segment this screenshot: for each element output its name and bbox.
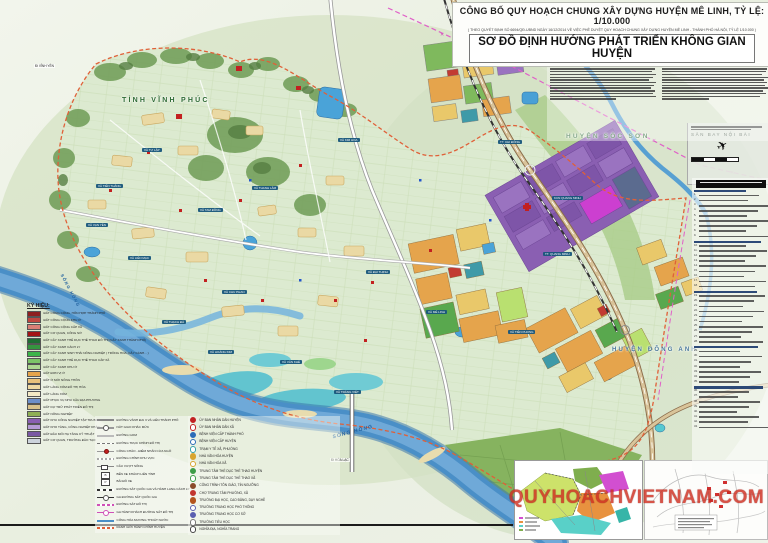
notes-item-text bbox=[699, 295, 765, 297]
facility-legend-label: TRƯỜNG TRUNG HỌC CƠ SỞ bbox=[199, 513, 245, 516]
transport-legend-label: CỐNG HÓA MƯƠNG THOÁT NƯỚC bbox=[117, 519, 169, 522]
transport-legend-label: NÚT GIAO KHÁC MỨC bbox=[117, 426, 150, 429]
transport-legend-item: ĐƯỜNG GOM bbox=[97, 432, 189, 439]
legend-swatch bbox=[27, 438, 41, 444]
notes-list-item: 19. bbox=[694, 294, 768, 298]
notes-list-item: 3. bbox=[694, 204, 768, 208]
facility-symbol bbox=[190, 468, 196, 474]
legend-swatch bbox=[27, 398, 41, 404]
facility-legend-label: BỆNH VIỆN CẤP HUYỆN bbox=[199, 440, 236, 443]
notes-item-text bbox=[699, 225, 757, 227]
facility-legend-item: BỆNH VIỆN CẤP THÀNH PHỐ bbox=[190, 432, 338, 438]
facility-legend-item: ỦY BAN NHÂN DÂN XÃ bbox=[190, 424, 338, 430]
facility-legend-label: CÔNG TRÌNH TÔN GIÁO, TÍN NGƯỠNG bbox=[199, 484, 258, 487]
notes-item-text bbox=[699, 366, 740, 368]
facility-symbol bbox=[190, 512, 196, 518]
legend-swatch bbox=[27, 371, 41, 377]
transport-legend-label: ĐƯỜNG TRỤC CHÍNH ĐÔ THỊ bbox=[117, 442, 161, 445]
legend-item: ĐẤT LÀNG XÓM ĐÔ THỊ HÓA bbox=[27, 385, 145, 391]
legend-swatch bbox=[27, 338, 41, 344]
transport-legend-item: ĐƯỜNG CHÍNH KHU VỰC bbox=[97, 455, 189, 462]
notes-item-text bbox=[699, 356, 762, 358]
legend-swatch bbox=[27, 391, 41, 397]
notes-list-item: 38. bbox=[694, 400, 768, 404]
legend-label: ĐẤT PHỤC VỤ NHU CẦU ĐỊA PHƯƠNG bbox=[44, 399, 101, 402]
facility-legend-label: NHÀ VĂN HÓA HUYỆN bbox=[199, 455, 233, 458]
notes-item-text bbox=[699, 321, 742, 323]
facility-legend-label: ỦY BAN NHÂN DÂN XÃ bbox=[199, 426, 233, 429]
notes-item-text bbox=[699, 276, 744, 278]
rail-station-glyph bbox=[97, 495, 114, 500]
transport-legend-item: ĐƯỜNG SẮT QUỐC GIA VÀ HÀNH LANG CÁCH LY bbox=[97, 486, 189, 493]
notes-list-item: 14. bbox=[694, 264, 768, 268]
facility-legend-item: TRUNG TÂM THỂ DỤC THỂ THAO XÃ bbox=[190, 475, 338, 481]
notes-list-item: 2. bbox=[694, 199, 768, 203]
legend-swatch bbox=[27, 344, 41, 350]
map-subtitle-decision: ( THEO QUYẾT ĐỊNH SỐ 6694/QĐ-UBND NGÀY 1… bbox=[455, 28, 768, 32]
legend-label: ĐẤT CÔNG CỘNG CẤP XÃ bbox=[44, 326, 83, 329]
notes-list-item: 31. bbox=[694, 360, 768, 364]
notes-list-item: 23. bbox=[694, 315, 768, 319]
facility-symbol bbox=[190, 526, 196, 532]
rail-glyph bbox=[97, 487, 114, 492]
transport-legend-item: PBÃI ĐỖ XE bbox=[97, 479, 189, 486]
road-dash-glyph bbox=[97, 441, 114, 446]
legend-label: ĐẤT ĐẦU MỐI HẠ TẦNG KỸ THUẬT bbox=[44, 433, 95, 436]
notes-item-text bbox=[699, 255, 756, 257]
legend-item: ĐẤT ĐƠN VỊ Ở bbox=[27, 371, 145, 377]
transport-legend-label: GA ĐƯỜNG SẮT QUỐC GIA bbox=[117, 496, 157, 499]
notes-item-text bbox=[699, 300, 754, 302]
notes-list-item: 25. bbox=[694, 325, 768, 329]
legend-label: ĐẤT CÂY XANH THỂ DỤC THỂ THAO CẤP XÃ bbox=[44, 359, 110, 362]
facility-legend-item: CÔNG TRÌNH TÔN GIÁO, TÍN NGƯỠNG bbox=[190, 483, 338, 489]
facility-legend-item: TRƯỜNG TRUNG HỌC PHỔ THÔNG bbox=[190, 505, 338, 511]
facility-legend-item: TRƯỜNG ĐẠI HỌC, CAO ĐẲNG, DẠY NGHỀ bbox=[190, 497, 338, 503]
facility-legend-item: NHÀ VĂN HÓA XÃ bbox=[190, 461, 338, 467]
notes-list-item: 43. bbox=[694, 425, 768, 429]
notes-section-header bbox=[694, 241, 761, 243]
transport-legend-label: GA HÀNH KHÁCH ĐƯỜNG SẮT ĐÔ THỊ bbox=[117, 511, 174, 514]
notes-item-text bbox=[699, 200, 748, 202]
facility-legend-item: TRẠM Y TẾ XÃ, PHƯỜNG bbox=[190, 446, 338, 452]
legend-item: ĐẤT CÂY XANH SINH THÁI NÔNG NGHIỆP ( TRỒ… bbox=[27, 351, 145, 357]
notes-item-text bbox=[699, 406, 749, 408]
facility-legend-item: NGHĨA ĐỊA, NGHĨA TRANG bbox=[190, 526, 338, 532]
notes-list-item: 18. bbox=[694, 285, 768, 289]
legend-item: ĐẤT CÂY XANH KHU Ở bbox=[27, 365, 145, 371]
legend-item: ĐẤT CÔNG CỘNG KHU Ở bbox=[27, 318, 145, 324]
transport-legend-item: NÚT GIAO KHÁC MỨC bbox=[97, 425, 189, 432]
transport-legend-label: ĐƯỜNG GOM bbox=[117, 434, 137, 437]
legend-label: ĐẤT NÔNG NGHIỆP bbox=[44, 413, 73, 416]
legend-item: ĐẤT CÂY XANH THỂ DỤC THỂ THAO ĐÔ THỊ (CÂ… bbox=[27, 338, 145, 344]
notes-list-item: 4. bbox=[694, 209, 768, 213]
notes-list-item: 29. bbox=[694, 350, 768, 354]
notes-item-text bbox=[699, 306, 743, 308]
notes-item-text bbox=[699, 215, 747, 217]
notes-item-text bbox=[699, 331, 752, 333]
notes-item-text bbox=[699, 311, 764, 313]
transport-legend-item: RANH GIỚI HÀNH CHÍNH HUYỆN bbox=[97, 525, 189, 532]
facility-symbol bbox=[190, 446, 196, 452]
facility-legend-label: BỆNH VIỆN CẤP THÀNH PHỐ bbox=[199, 433, 243, 436]
notes-item-text bbox=[699, 260, 745, 262]
notes-item-text bbox=[699, 416, 759, 418]
transport-legend-label: ĐƯỜNG SẮT QUỐC GIA VÀ HÀNH LANG CÁCH LY bbox=[117, 488, 190, 491]
notes-item-text bbox=[699, 205, 768, 207]
legend-swatch bbox=[27, 317, 41, 323]
facility-legend-item: BỆNH VIỆN CẤP HUYỆN bbox=[190, 439, 338, 445]
legend-swatch bbox=[27, 358, 41, 364]
transport-legend-label: ĐƯỜNG VÀNH ĐAI 3 VÀ LIÊN THÀNH PHỐ bbox=[117, 419, 179, 422]
notes-list-item: 21. bbox=[694, 304, 768, 308]
notes-list-item: 41. bbox=[694, 415, 768, 419]
legend-label: ĐẤT CƠ QUAN, CÔNG SỞ bbox=[44, 332, 82, 335]
map-title: CÔNG BỐ QUY HOẠCH CHUNG XÂY DỰNG HUYỆN M… bbox=[455, 6, 768, 26]
facility-legend-label: TRƯỜNG TRUNG HỌC PHỔ THÔNG bbox=[199, 506, 254, 509]
notes-item-text bbox=[699, 401, 760, 403]
facility-legend-item: TRƯỜNG TRUNG HỌC CƠ SỞ bbox=[190, 512, 338, 518]
svg-text:✕: ✕ bbox=[440, 32, 444, 38]
facility-legend-item: NHÀ VĂN HÓA HUYỆN bbox=[190, 453, 338, 459]
transport-legend-item: GA ĐƯỜNG SẮT QUỐC GIA bbox=[97, 494, 189, 501]
legend-label: ĐẤT Ở MỚI NÔNG THÔN bbox=[44, 379, 80, 382]
notes-item-text bbox=[699, 326, 763, 328]
notes-list-item: 9. bbox=[694, 234, 768, 238]
notes-list-item: 8. bbox=[694, 229, 768, 233]
notes-list-item: 5. bbox=[694, 214, 768, 218]
notes-list-item: 1. bbox=[694, 194, 768, 198]
boundary-glyph bbox=[97, 525, 114, 530]
notes-item-text bbox=[699, 371, 761, 373]
notes-item-text bbox=[699, 351, 740, 353]
notes-item-text bbox=[699, 210, 758, 212]
metro-station-glyph bbox=[97, 510, 114, 515]
transport-legend-label: BÃI ĐỖ XE bbox=[117, 480, 132, 483]
transport-legend-item: GA HÀNH KHÁCH ĐƯỜNG SẮT ĐÔ THỊ bbox=[97, 509, 189, 516]
facility-symbol bbox=[190, 424, 196, 430]
transport-legend-label: ĐƯỜNG SẮT ĐÔ THỊ bbox=[117, 503, 147, 506]
legend-item: ĐẤT CÂY XANH CÁCH LY bbox=[27, 344, 145, 350]
canal-glyph bbox=[97, 518, 114, 523]
transport-legend-item: ĐƯỜNG VÀNH ĐAI 3 VÀ LIÊN THÀNH PHỐ bbox=[97, 417, 189, 424]
facility-legend-item: ỦY BAN NHÂN DÂN HUYỆN bbox=[190, 417, 338, 423]
legend-label: ĐẤT CÂY XANH CÁCH LY bbox=[44, 346, 81, 349]
notes-item-text bbox=[699, 427, 768, 429]
notes-list-item: 42. bbox=[694, 420, 768, 424]
legend-swatch bbox=[27, 404, 41, 410]
legend-swatch bbox=[27, 424, 41, 430]
legend-label: ĐẤT CÂY XANH SINH THÁI NÔNG NGHIỆP ( TRỒ… bbox=[44, 352, 149, 355]
notes-item-text bbox=[699, 361, 751, 363]
notes-list-item: 37. bbox=[694, 395, 768, 399]
transport-legend-label: RANH GIỚI HÀNH CHÍNH HUYỆN bbox=[117, 526, 165, 529]
legend-swatch bbox=[27, 418, 41, 424]
notes-item-text bbox=[699, 411, 737, 413]
transport-legend-item: BBẾN XE KHÁCH LIÊN TỈNH bbox=[97, 471, 189, 478]
notes-list-item: 39. bbox=[694, 405, 768, 409]
legend-swatch bbox=[27, 364, 41, 370]
notes-item-text bbox=[699, 250, 767, 252]
facility-legend-label: ỦY BAN NHÂN DÂN HUYỆN bbox=[199, 419, 240, 422]
legend-swatch bbox=[27, 324, 41, 330]
legend-label: ĐẤT CÂY XANH THỂ DỤC THỂ THAO ĐÔ THỊ (CÂ… bbox=[44, 339, 147, 342]
watermark: QUYHOACHVIETNAM.COM bbox=[505, 487, 768, 509]
notes-list-item: 15. bbox=[694, 269, 768, 273]
facility-legend-label: NHÀ VĂN HÓA XÃ bbox=[199, 462, 226, 465]
facility-legend-label: TRẠM Y TẾ XÃ, PHƯỜNG bbox=[199, 448, 237, 451]
legend-label: ĐẤT CÂY XANH KHU Ở bbox=[44, 366, 78, 369]
facility-symbol bbox=[190, 432, 196, 438]
notes-item-text bbox=[699, 376, 750, 378]
legend-title: KÝ HIỆU: bbox=[27, 303, 145, 309]
notes-item-text bbox=[699, 391, 749, 393]
map-scheme-title: SƠ ĐỒ ĐỊNH HƯỚNG PHÁT TRIỂN KHÔNG GIAN H… bbox=[469, 34, 755, 63]
transport-legend: ĐƯỜNG VÀNH ĐAI 3 VÀ LIÊN THÀNH PHỐNÚT GI… bbox=[95, 416, 191, 533]
facility-symbol bbox=[190, 497, 196, 503]
transport-legend-item: CẦU VƯỢT SÔNG bbox=[97, 463, 189, 470]
facility-legend-label: TRUNG TÂM THỂ DỤC THỂ THAO XÃ bbox=[199, 477, 255, 480]
bridge-glyph bbox=[97, 464, 114, 469]
legend-swatch bbox=[27, 311, 41, 317]
notes-list-rows: 1.2.3.4.5.6.7.8.9.10.11.12.13.14.15.16.1… bbox=[694, 190, 768, 429]
notes-item-text bbox=[699, 396, 738, 398]
legend-swatch bbox=[27, 384, 41, 390]
notes-item-text bbox=[699, 336, 741, 338]
notes-list-item: 13. bbox=[694, 259, 768, 263]
facility-legend: ỦY BAN NHÂN DÂN HUYỆNỦY BAN NHÂN DÂN XÃB… bbox=[188, 416, 340, 535]
gate-glyph bbox=[97, 449, 114, 454]
legend-item: ĐẤT PHỤC VỤ NHU CẦU ĐỊA PHƯƠNG bbox=[27, 398, 145, 404]
road-minor-glyph bbox=[97, 433, 114, 438]
notes-list-item: 16. bbox=[694, 274, 768, 278]
transport-legend-item: CỐNG HÓA MƯƠNG THOÁT NƯỚC bbox=[97, 517, 189, 524]
facility-symbol bbox=[190, 461, 196, 467]
facility-symbol bbox=[190, 505, 196, 511]
notes-section-header bbox=[694, 291, 757, 293]
legend-item: ĐẤT LÀNG XÓM bbox=[27, 391, 145, 397]
junction-glyph bbox=[97, 425, 114, 430]
notes-item-text bbox=[699, 236, 768, 238]
notes-section-header bbox=[694, 190, 746, 192]
notes-item-text bbox=[699, 341, 763, 343]
road-dash2-glyph bbox=[97, 456, 114, 461]
legend-swatch bbox=[27, 378, 41, 384]
legend-item: ĐẤT DỰ TRỮ PHÁT TRIỂN ĐÔ THỊ bbox=[27, 405, 145, 411]
legend-label: ĐẤT DỰ TRỮ PHÁT TRIỂN ĐÔ THỊ bbox=[44, 406, 94, 409]
facility-legend-item: TRUNG TÂM THỂ DỤC THỂ THAO HUYỆN bbox=[190, 468, 338, 474]
legend-label: ĐẤT KHO TÀNG, CÔNG NGHIỆP KHÁC bbox=[44, 426, 100, 429]
scale-bar bbox=[691, 157, 739, 162]
legend-swatch bbox=[27, 331, 41, 337]
legend-label: ĐẤT LÀNG XÓM ĐÔ THỊ HÓA bbox=[44, 386, 86, 389]
legend-label: ĐẤT LÀNG XÓM bbox=[44, 393, 67, 396]
notes-columns bbox=[550, 62, 768, 102]
notes-list-item: 32. bbox=[694, 365, 768, 369]
notes-list-item: 33. bbox=[694, 370, 768, 374]
notes-list-item: 26. bbox=[694, 330, 768, 334]
legend-swatch bbox=[27, 431, 41, 437]
legend-swatch bbox=[27, 411, 41, 417]
facility-legend-item: TRƯỜNG TIỂU HỌC bbox=[190, 519, 338, 525]
notes-list-item: 22. bbox=[694, 309, 768, 313]
notes-item-text bbox=[699, 421, 748, 423]
notes-list-item: 7. bbox=[694, 224, 768, 228]
notes-list-item: 27. bbox=[694, 335, 768, 339]
legend-swatch bbox=[27, 351, 41, 357]
notes-list-item: 11. bbox=[694, 249, 768, 253]
legend-label: ĐẤT CÔNG CỘNG KHU Ở bbox=[44, 319, 81, 322]
notes-list-item: 12. bbox=[694, 254, 768, 258]
notes-section-header bbox=[694, 386, 763, 388]
facility-legend-label: CHỢ TRUNG TÂM PHƯỜNG, XÃ bbox=[199, 492, 248, 495]
transport-legend-label: CẦU VƯỢT SÔNG bbox=[117, 465, 144, 468]
notes-list-item: 36. bbox=[694, 390, 768, 394]
notes-item-text bbox=[699, 245, 746, 247]
notes-list-item: 30. bbox=[694, 355, 768, 359]
notes-list-item: 40. bbox=[694, 410, 768, 414]
notes-list-item: 34. bbox=[694, 375, 768, 379]
facility-legend-item: CHỢ TRUNG TÂM PHƯỜNG, XÃ bbox=[190, 490, 338, 496]
metro-glyph bbox=[97, 502, 114, 507]
facility-legend-label: TRƯỜNG TIỂU HỌC bbox=[199, 521, 230, 524]
notes-item-text bbox=[699, 286, 755, 288]
transport-legend-label: CỔNG CHÀO - ĐIỂM NHẤN CỬA NGÕ bbox=[117, 450, 172, 453]
transport-legend-item: CỔNG CHÀO - ĐIỂM NHẤN CỬA NGÕ bbox=[97, 448, 189, 455]
legend-item: ĐẤT CÂY XANH THỂ DỤC THỂ THAO CẤP XÃ bbox=[27, 358, 145, 364]
facility-legend-label: NGHĨA ĐỊA, NGHĨA TRANG bbox=[199, 528, 239, 531]
facility-legend-label: TRƯỜNG ĐẠI HỌC, CAO ĐẲNG, DẠY NGHỀ bbox=[199, 499, 265, 502]
facility-legend-label: TRUNG TÂM THỂ DỤC THỂ THAO HUYỆN bbox=[199, 470, 262, 473]
legend-label: ĐẤT CÔNG CỘNG, HỖN HỢP THÀNH PHỐ bbox=[44, 312, 106, 315]
facility-symbol bbox=[190, 417, 196, 423]
legend-item: ĐẤT Ở MỚI NÔNG THÔN bbox=[27, 378, 145, 384]
legend-label: ĐẤT ĐƠN VỊ Ở bbox=[44, 372, 65, 375]
transport-legend-item: ĐƯỜNG SẮT ĐÔ THỊ bbox=[97, 502, 189, 509]
notes-column-1 bbox=[550, 62, 656, 102]
notes-list-item: 20. bbox=[694, 299, 768, 303]
transport-legend-label: ĐƯỜNG CHÍNH KHU VỰC bbox=[117, 457, 155, 460]
planning-map-sheet: ✕ ✕ ✕ ✕ TỈNH VĨNH PHÚCHUYỆN SÓC SƠ bbox=[0, 0, 768, 543]
parking-glyph: P bbox=[97, 479, 114, 484]
legend-label: ĐẤT CƠ QUAN, TRƯỜNG ĐÀO TẠO bbox=[44, 439, 96, 442]
legend-item: ĐẤT CÔNG CỘNG, HỖN HỢP THÀNH PHỐ bbox=[27, 311, 145, 317]
transport-legend-label: BẾN XE KHÁCH LIÊN TỈNH bbox=[117, 473, 156, 476]
numbered-notes-list: 1.2.3.4.5.6.7.8.9.10.11.12.13.14.15.16.1… bbox=[692, 178, 768, 474]
notes-item-text bbox=[699, 265, 766, 267]
notes-section-header bbox=[694, 346, 758, 348]
facility-symbol bbox=[190, 483, 196, 489]
facility-symbol bbox=[190, 453, 196, 459]
notes-list-item: 28. bbox=[694, 340, 768, 344]
notes-list-item: 24. bbox=[694, 320, 768, 324]
notes-item-text bbox=[699, 316, 753, 318]
facility-symbol bbox=[190, 475, 196, 481]
notes-list-item: 35. bbox=[694, 380, 768, 384]
busstation-glyph: B bbox=[97, 472, 114, 477]
legend-item: ĐẤT CƠ QUAN, CÔNG SỞ bbox=[27, 331, 145, 337]
notes-item-text bbox=[699, 381, 739, 383]
road-major-glyph bbox=[97, 418, 114, 423]
transport-legend-item: ĐƯỜNG TRỤC CHÍNH ĐÔ THỊ bbox=[97, 440, 189, 447]
title-block: CÔNG BỐ QUY HOẠCH CHUNG XÂY DỰNG HUYỆN M… bbox=[452, 2, 768, 67]
notes-list-header bbox=[696, 180, 766, 188]
notes-list-item: 6. bbox=[694, 219, 768, 223]
facility-symbol bbox=[190, 519, 196, 525]
facility-symbol bbox=[190, 490, 196, 496]
facility-symbol bbox=[190, 439, 196, 445]
legend-item: ĐẤT CÔNG CỘNG CẤP XÃ bbox=[27, 324, 145, 330]
notes-item-text bbox=[699, 271, 755, 273]
notes-list-item: 17. bbox=[694, 280, 768, 284]
notes-list-item: 10. bbox=[694, 244, 768, 248]
notes-item-text bbox=[699, 230, 746, 232]
notes-item-text bbox=[699, 195, 759, 197]
notes-item-text bbox=[699, 220, 768, 222]
notes-column-2 bbox=[662, 62, 768, 102]
legend-label: ĐẤT KHU CÔNG NGHIỆP TẬP TRUNG bbox=[44, 419, 99, 422]
notes-item-text bbox=[699, 281, 766, 283]
